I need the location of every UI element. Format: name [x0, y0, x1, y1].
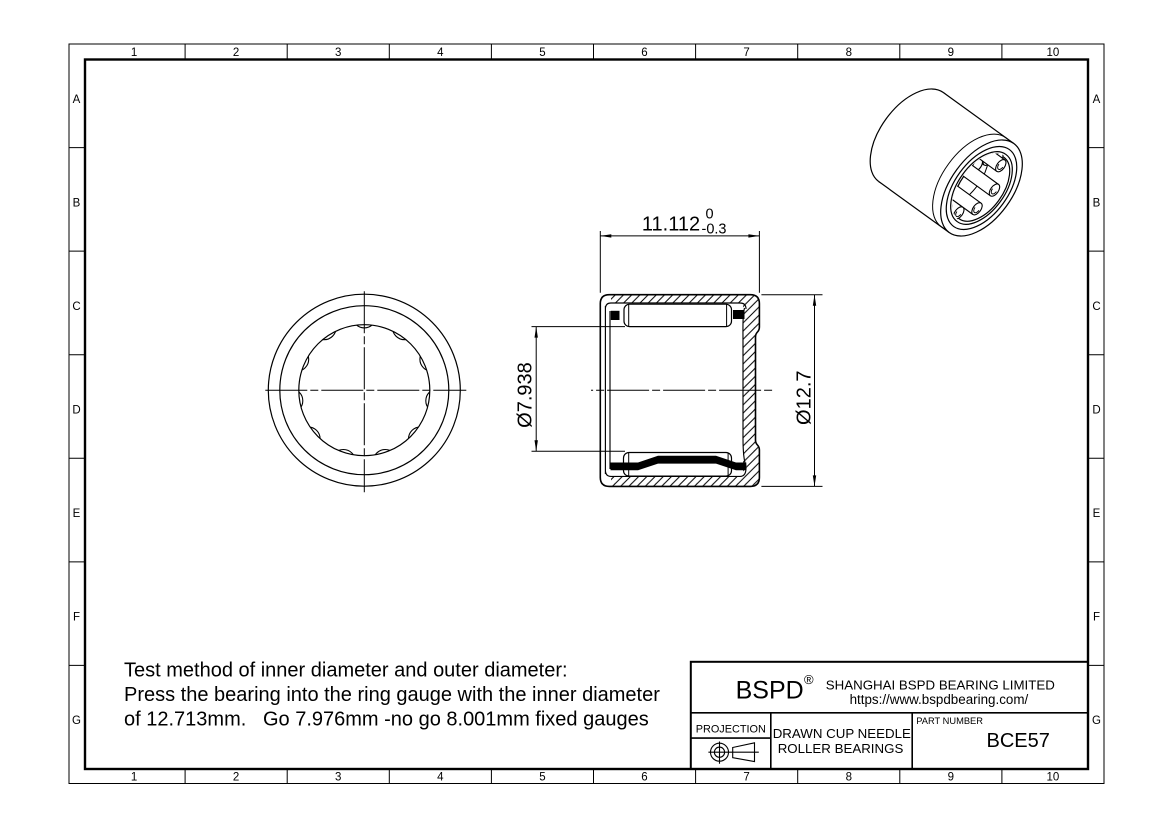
svg-text:3: 3: [335, 772, 341, 784]
svg-text:9: 9: [948, 47, 954, 59]
svg-text:8: 8: [846, 47, 852, 59]
svg-text:4: 4: [437, 47, 444, 59]
svg-text:2: 2: [233, 772, 239, 784]
svg-text:PART NUMBER: PART NUMBER: [916, 716, 983, 726]
svg-text:B: B: [1093, 197, 1101, 209]
svg-text:11.112: 11.112: [642, 214, 700, 236]
svg-text:Press the bearing into the rin: Press the bearing into the ring gauge wi…: [124, 684, 660, 706]
svg-text:G: G: [72, 715, 81, 727]
svg-text:8: 8: [846, 772, 852, 784]
svg-text:DRAWN CUP NEEDLE: DRAWN CUP NEEDLE: [773, 726, 911, 741]
svg-text:®: ®: [804, 672, 814, 687]
svg-text:6: 6: [641, 772, 647, 784]
svg-text:6: 6: [641, 47, 647, 59]
svg-text:0: 0: [706, 207, 714, 223]
svg-text:F: F: [1093, 612, 1100, 624]
svg-text:3: 3: [335, 47, 341, 59]
svg-text:F: F: [73, 612, 80, 624]
svg-text:Ø12.7: Ø12.7: [793, 370, 815, 424]
svg-text:5: 5: [539, 772, 545, 784]
svg-text:9: 9: [948, 772, 954, 784]
svg-text:G: G: [1092, 715, 1101, 727]
svg-text:BCE57: BCE57: [987, 730, 1050, 752]
svg-text:-0.3: -0.3: [702, 222, 727, 238]
svg-text:10: 10: [1047, 47, 1060, 59]
svg-text:Ø7.938: Ø7.938: [515, 362, 537, 428]
svg-text:ROLLER BEARINGS: ROLLER BEARINGS: [778, 741, 904, 756]
svg-text:SHANGHAI BSPD BEARING LIMITED: SHANGHAI BSPD BEARING LIMITED: [826, 677, 1055, 692]
svg-text:A: A: [1093, 94, 1101, 106]
svg-text:PROJECTION: PROJECTION: [696, 724, 766, 736]
svg-text:D: D: [1092, 405, 1100, 417]
svg-text:5: 5: [539, 47, 545, 59]
svg-text:Test method of inner diameter: Test method of inner diameter and outer …: [124, 660, 568, 682]
svg-text:B: B: [73, 197, 81, 209]
svg-text:7: 7: [743, 772, 749, 784]
svg-text:E: E: [73, 508, 81, 520]
svg-text:D: D: [72, 405, 80, 417]
svg-text:1: 1: [131, 47, 137, 59]
svg-text:C: C: [1092, 301, 1100, 313]
svg-text:C: C: [72, 301, 80, 313]
svg-text:2: 2: [233, 47, 239, 59]
svg-text:1: 1: [131, 772, 137, 784]
svg-text:E: E: [1093, 508, 1101, 520]
svg-text:A: A: [73, 94, 81, 106]
svg-text:4: 4: [437, 772, 444, 784]
svg-text:https://www.bspdbearing.com/: https://www.bspdbearing.com/: [850, 692, 1029, 707]
svg-text:BSPD: BSPD: [736, 676, 804, 704]
svg-text:7: 7: [743, 47, 749, 59]
svg-text:of 12.713mm. Go 7.976mm -no: of 12.713mm. Go 7.976mm -no go 8.001mm f…: [124, 708, 649, 730]
svg-text:10: 10: [1047, 772, 1060, 784]
